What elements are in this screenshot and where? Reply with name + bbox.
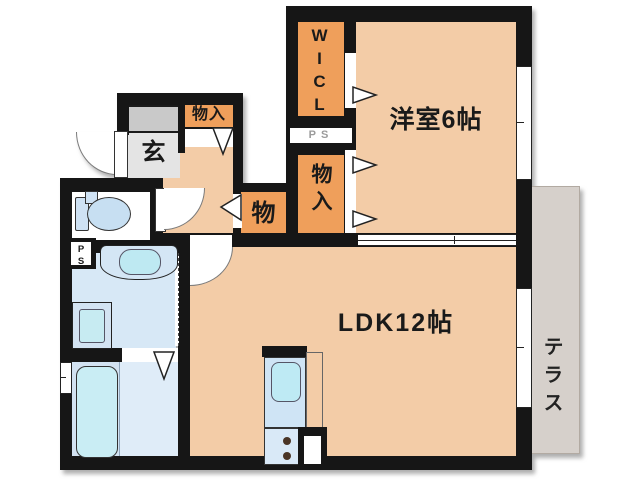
walk-in-closet-label: WICL [311, 26, 328, 118]
stove-burner-icon [283, 452, 291, 460]
wall-segment [286, 6, 532, 22]
washing-machine [79, 309, 105, 343]
door-arrow-icon [352, 85, 378, 105]
door-arrow-icon [219, 193, 243, 223]
wall-segment [60, 178, 163, 192]
kitchen-sink [271, 362, 301, 402]
window [60, 362, 72, 394]
floorplan-image: 洋室6帖 LDK12帖 玄 WICL 物入 物 物入 PS PS テラス [0, 0, 640, 480]
storage-column-label: 物入 [310, 163, 331, 217]
kitchen-pipe-shaft-inner [304, 436, 321, 464]
storage-hall-label: 物 [241, 202, 286, 226]
sliding-door [358, 234, 516, 246]
sliding-door-tick [454, 236, 455, 244]
pipe-space-lower-label: PS [76, 244, 86, 268]
terrace-label: テラス [541, 336, 561, 420]
wall-segment [60, 178, 72, 470]
door-arrow-icon [211, 127, 235, 157]
toilet-bowl [87, 197, 131, 231]
storage-top-label: 物入 [185, 107, 233, 123]
window [516, 288, 532, 408]
sliding-door-track [358, 240, 516, 241]
entrance-label: 玄 [127, 141, 180, 165]
door-arrow-icon [352, 209, 378, 229]
entrance-step [127, 105, 180, 133]
bathtub [76, 366, 118, 458]
washbasin-sink [119, 249, 161, 275]
ldk-floor [190, 245, 516, 457]
window [516, 66, 532, 180]
door-arrow-icon [352, 155, 378, 175]
ldk-doorway [190, 235, 232, 247]
wall-segment [117, 93, 243, 105]
door-arrow-icon [152, 351, 176, 382]
entrance-door-swing [76, 132, 117, 175]
western-room-label: 洋室6帖 [356, 108, 516, 133]
stove-burner-icon [283, 437, 291, 445]
pipe-space-upper-label: PS [290, 130, 352, 141]
wall-segment [117, 93, 129, 135]
ldk-label: LDK12帖 [316, 311, 476, 336]
kitchen-counter-edge [306, 352, 323, 428]
kitchen-counter-back [262, 346, 307, 357]
entrance-door-leaf [114, 131, 128, 178]
wall-segment [178, 240, 190, 470]
wall-segment [233, 183, 292, 192]
